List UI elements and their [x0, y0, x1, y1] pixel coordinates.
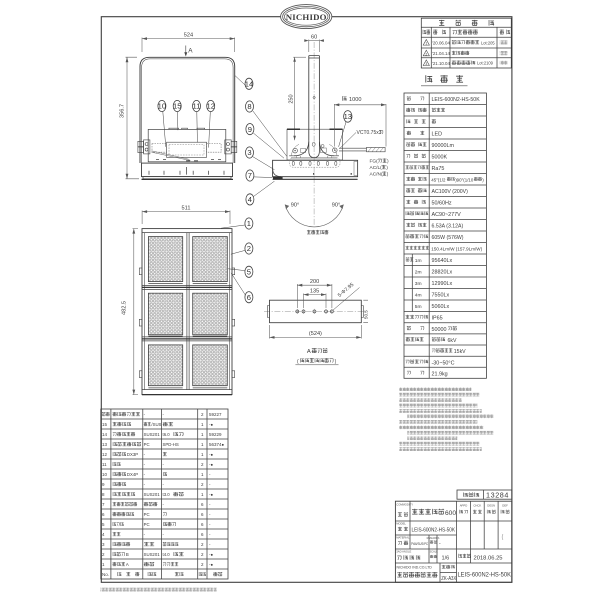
svg-text:IP65: IP65 — [432, 316, 443, 322]
svg-text:50/60Hz: 50/60Hz — [432, 201, 452, 207]
svg-text:4m: 4m — [415, 293, 422, 299]
svg-text:MODEL: MODEL — [396, 522, 406, 526]
svg-text:-●: -● — [209, 552, 214, 557]
svg-text:t4.0: t4.0 — [163, 552, 171, 557]
svg-text:-●: -● — [209, 422, 214, 427]
svg-text:'20.06.04: '20.06.04 — [432, 41, 450, 46]
svg-text:B: B — [126, 552, 129, 557]
svg-text:13284: 13284 — [486, 491, 509, 500]
svg-text:(524): (524) — [309, 331, 322, 337]
svg-text:10: 10 — [102, 472, 108, 477]
svg-text:LED: LED — [432, 132, 443, 138]
svg-text:1m: 1m — [415, 258, 422, 264]
svg-text:-●: -● — [209, 492, 214, 497]
svg-text:LEIS-600N2-HS-50K: LEIS-600N2-HS-50K — [457, 572, 511, 579]
svg-text:A: A — [126, 562, 129, 567]
svg-text:3m: 3m — [415, 281, 422, 287]
svg-text:482.5: 482.5 — [121, 301, 127, 315]
svg-text:A: A — [307, 349, 311, 355]
svg-text:45°(1/2: 45°(1/2 — [431, 177, 446, 182]
svg-text:LEIS-600N2-HS-50K: LEIS-600N2-HS-50K — [432, 97, 481, 103]
svg-text:11: 11 — [193, 102, 201, 111]
svg-text:SUS201: SUS201 — [144, 492, 161, 497]
svg-text:90°: 90° — [332, 202, 340, 208]
svg-text:PC: PC — [144, 442, 150, 447]
svg-text:t3.0: t3.0 — [163, 492, 171, 497]
svg-text:1/6: 1/6 — [442, 555, 450, 561]
svg-text:60: 60 — [311, 34, 317, 40]
svg-text:2m: 2m — [415, 270, 422, 276]
svg-text:NICHIDO: NICHIDO — [286, 12, 327, 22]
svg-text:50000: 50000 — [432, 327, 447, 333]
svg-text:1: 1 — [425, 42, 427, 46]
svg-text:14: 14 — [245, 80, 253, 89]
svg-text:2: 2 — [425, 52, 427, 56]
svg-text:524: 524 — [184, 33, 193, 39]
svg-text:LEIS-600N2-HS-50K: LEIS-600N2-HS-50K — [412, 528, 456, 534]
svg-text:AC/N(: AC/N( — [370, 172, 383, 178]
svg-text:7550Lx: 7550Lx — [432, 293, 450, 299]
svg-text:FG(: FG( — [370, 159, 379, 165]
svg-text:t6.0: t6.0 — [163, 432, 171, 437]
svg-text:REMARKS: REMARKS — [427, 536, 440, 540]
svg-text:-●: -● — [209, 462, 214, 467]
svg-text:605W (576W): 605W (576W) — [432, 235, 464, 241]
svg-text:-●: -● — [209, 452, 214, 457]
svg-text:600: 600 — [445, 510, 456, 517]
svg-text:SUS201: SUS201 — [144, 552, 161, 557]
svg-text:1000: 1000 — [349, 97, 361, 103]
svg-text:'21.10.04: '21.10.04 — [432, 61, 450, 66]
svg-text:90°: 90° — [291, 202, 299, 208]
svg-text:'21.04.14: '21.04.14 — [432, 51, 450, 56]
svg-text:PC: PC — [144, 522, 150, 527]
svg-text:Lot:2109: Lot:2109 — [477, 61, 494, 66]
svg-text:15kV: 15kV — [454, 349, 466, 355]
svg-text:Lot:205: Lot:205 — [481, 40, 495, 45]
svg-text:7: 7 — [248, 171, 252, 180]
svg-text:'PA6/SUS/PC: 'PA6/SUS/PC — [411, 541, 428, 546]
svg-text:DEF: DEF — [502, 504, 508, 508]
svg-text:NICHIDO IND.CO.LTD: NICHIDO IND.CO.LTD — [397, 565, 433, 569]
svg-text:5060Lx: 5060Lx — [432, 304, 450, 310]
svg-text:13: 13 — [102, 442, 108, 447]
svg-text:DX3P: DX3P — [127, 452, 138, 457]
svg-text:15: 15 — [102, 422, 108, 427]
svg-text:56374●: 56374● — [209, 442, 225, 447]
svg-text:12: 12 — [206, 102, 214, 111]
svg-text:5000K: 5000K — [432, 155, 448, 161]
svg-text:)90°(1/10: )90°(1/10 — [455, 177, 474, 182]
svg-text:28820Lx: 28820Lx — [432, 270, 453, 276]
svg-text:150.4Lm/W (157.9Lm/W): 150.4Lm/W (157.9Lm/W) — [431, 246, 482, 251]
svg-text:5: 5 — [247, 268, 251, 277]
svg-text:59229: 59229 — [209, 432, 222, 437]
svg-text:Ra75: Ra75 — [432, 166, 445, 172]
svg-text:15: 15 — [173, 102, 181, 111]
svg-text:135: 135 — [310, 289, 319, 295]
svg-text:3AD ANGLE: 3AD ANGLE — [396, 550, 411, 554]
svg-text:1: 1 — [247, 219, 251, 228]
svg-text:12990Lx: 12990Lx — [432, 281, 453, 287]
svg-text:A: A — [188, 48, 193, 55]
svg-text:11: 11 — [102, 462, 107, 467]
svg-text:AC90~277V: AC90~277V — [432, 212, 462, 218]
svg-text:-●: -● — [209, 562, 214, 567]
svg-text:12: 12 — [102, 452, 108, 457]
svg-text:90000Lm: 90000Lm — [432, 143, 455, 149]
svg-text:9: 9 — [248, 125, 252, 134]
svg-text:APPD: APPD — [460, 504, 468, 508]
svg-text:2: 2 — [247, 244, 251, 253]
svg-text:10: 10 — [158, 102, 166, 111]
svg-text:95640Lx: 95640Lx — [432, 258, 453, 264]
svg-text:/SUS: /SUS — [151, 422, 161, 427]
svg-text:6.53A (3.12A): 6.53A (3.12A) — [432, 224, 464, 230]
svg-text:COMMODITY: COMMODITY — [396, 503, 413, 507]
svg-text:VCT0.75x3: VCT0.75x3 — [357, 130, 382, 136]
svg-text:3: 3 — [425, 62, 427, 66]
svg-text:PC: PC — [144, 512, 150, 517]
svg-text:6kV: 6kV — [448, 338, 457, 344]
svg-text:21.9kg: 21.9kg — [432, 371, 448, 377]
svg-text:59227: 59227 — [209, 412, 222, 417]
svg-text:CHCK: CHCK — [473, 504, 481, 508]
svg-text:356.7: 356.7 — [120, 104, 126, 118]
svg-text:14: 14 — [102, 432, 108, 437]
svg-text:2018.06.25: 2018.06.25 — [474, 556, 503, 562]
svg-text:AC/L(: AC/L( — [370, 165, 383, 171]
svg-text:50.5: 50.5 — [363, 310, 368, 319]
svg-text:200: 200 — [310, 279, 319, 285]
svg-text:SCALE: SCALE — [430, 550, 439, 553]
svg-text:SPD-HS: SPD-HS — [163, 442, 179, 447]
svg-text:8: 8 — [247, 102, 251, 111]
svg-text:MATERIAL: MATERIAL — [396, 536, 410, 540]
svg-text:DX4P: DX4P — [127, 472, 138, 477]
svg-text:13: 13 — [344, 112, 352, 121]
svg-text:250: 250 — [288, 94, 294, 103]
svg-text:DESN: DESN — [487, 504, 495, 508]
svg-text:SUS201: SUS201 — [144, 432, 161, 437]
svg-text:3: 3 — [247, 148, 251, 157]
svg-text:5m: 5m — [415, 304, 422, 310]
svg-text:AC100V (200V): AC100V (200V) — [432, 189, 469, 195]
svg-text:-30~50°C: -30~50°C — [432, 360, 455, 366]
svg-text:4: 4 — [248, 195, 252, 204]
svg-text:6: 6 — [247, 293, 251, 302]
svg-text:ZK-A3X: ZK-A3X — [441, 576, 456, 582]
svg-text:No.: No. — [102, 572, 109, 577]
svg-text:511: 511 — [182, 205, 191, 211]
